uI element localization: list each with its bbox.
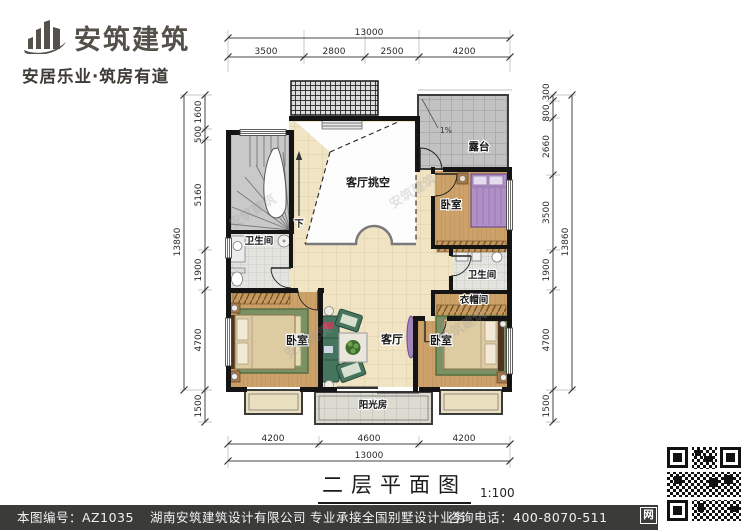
slope-label: 1% [440,126,452,135]
drawing-title-block: 二层平面图 1:100 [318,469,515,504]
dim-left-total: 13860 [173,227,183,256]
qr-pattern [664,444,744,524]
drawing-sheet: 安筑建筑 安居乐业·筑房有道 [0,0,750,530]
dim-right-total: 13860 [561,227,571,256]
room-label-void: 客厅挑空 [345,175,390,189]
company-name: 湖南安筑建筑设计有限公司 [150,505,306,530]
dim-top-2: 2800 [323,47,346,57]
room-label-cloakroom: 衣帽间 [460,294,489,306]
dim-left-4: 1900 [194,258,204,281]
qr-code [658,438,750,530]
web-badge: 网 [640,507,657,524]
dim-left-5: 4700 [194,328,204,351]
dim-bottom-1: 4200 [262,434,285,444]
drawing-code: 本图编号：AZ1035 [17,505,134,530]
dim-right-2: 800 [542,104,552,121]
dim-bottom-3: 4200 [453,434,476,444]
dim-top-1: 3500 [255,47,278,57]
drawing-title: 二层平面图 [318,469,471,504]
phone-number: 咨询电话：400-8070-511 [448,505,608,530]
room-label-bath-right: 卫生间 [468,269,497,281]
dim-right-7: 1500 [542,394,552,417]
dimensions-left: 1600 500 5160 1900 4700 1500 13860 [173,92,212,426]
dimensions-top: 13000 3500 2800 2500 4200 [225,28,514,72]
room-label-bedroom-tr: 卧室 [441,198,462,211]
service-text: 专业承接全国别墅设计业务 [310,505,466,530]
dim-bottom-2: 4600 [358,434,381,444]
stairs-down-label: 下 [294,219,304,230]
dim-left-2: 500 [194,126,204,143]
dim-right-4: 3500 [542,201,552,224]
dim-top-4: 4200 [453,47,476,57]
drawing-scale: 1:100 [480,486,515,504]
footer-bar: 本图编号：AZ1035 湖南安筑建筑设计有限公司 专业承接全国别墅设计业务 咨询… [0,505,750,530]
dim-top-total: 13000 [355,28,384,38]
dim-right-3: 2660 [542,135,552,158]
dim-right-1: 300 [542,83,552,100]
dim-left-3: 5160 [194,183,204,206]
dim-right-6: 4700 [542,328,552,351]
floor-plan: 客厅挑空 露台 1% 卧室 卫生间 卫生间 衣帽间 卧室 客厅 卧室 阳光房 下… [165,18,615,470]
dim-bottom-total: 13000 [355,451,384,461]
dim-left-6: 1500 [194,394,204,417]
dim-right-5: 1900 [542,258,552,281]
dimensions-bottom: 4200 4600 4200 13000 [225,434,514,468]
building-logo-icon [22,14,68,54]
dim-left-1: 1600 [194,100,204,123]
dim-top-3: 2500 [381,47,404,57]
room-label-living: 客厅 [380,332,403,346]
room-label-terrace: 露台 [469,140,490,153]
room-label-sunroom: 阳光房 [359,399,388,411]
dimensions-right: 300 800 2660 3500 1900 4700 1500 13860 [542,83,576,425]
room-label-bath-left: 卫生间 [245,235,274,247]
